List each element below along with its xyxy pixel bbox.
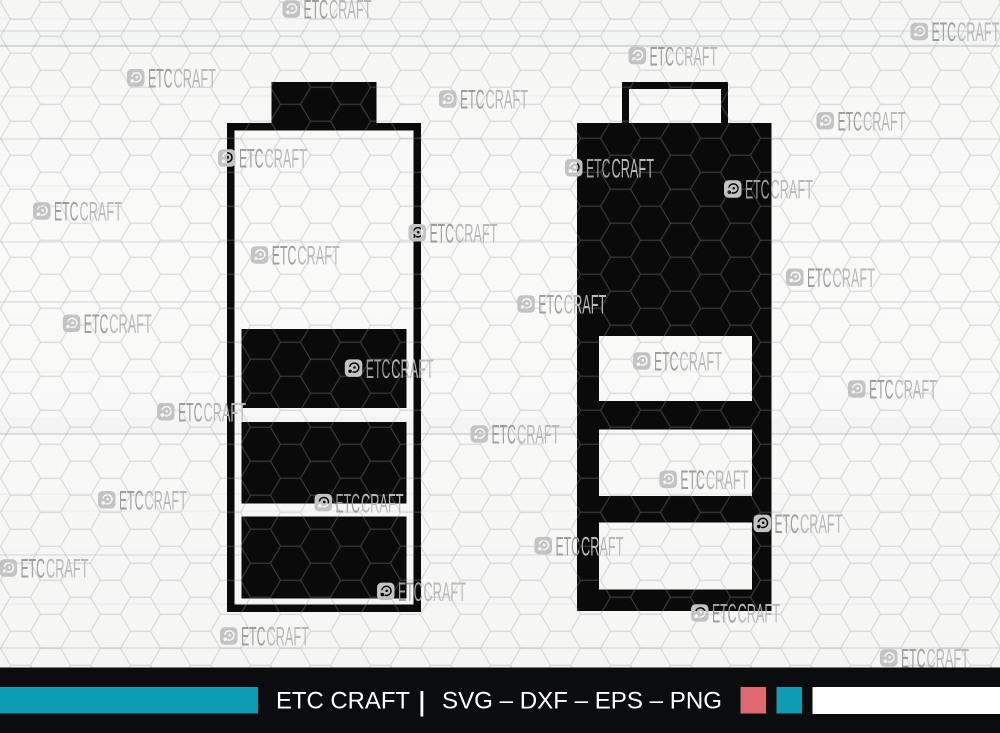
svg-text:ETC CRAFT: ETC CRAFT [276, 688, 410, 715]
svg-text:SVG – DXF – EPS – PNG: SVG – DXF – EPS – PNG [442, 688, 722, 715]
